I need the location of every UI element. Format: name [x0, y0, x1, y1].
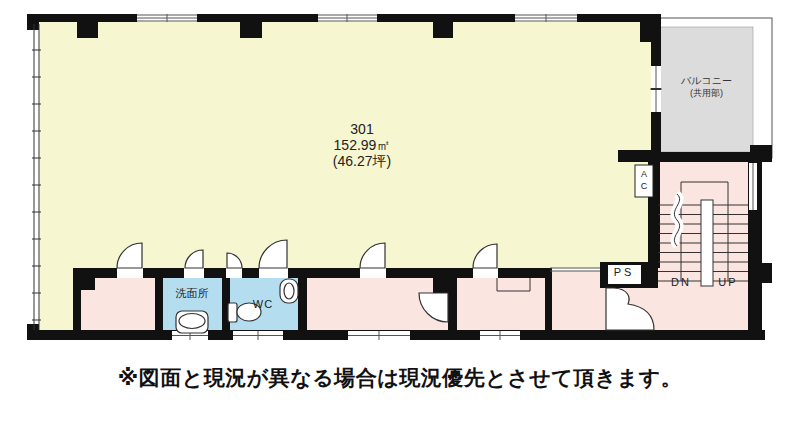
toilet-fixture	[228, 303, 237, 322]
stair-handrail	[701, 200, 713, 286]
unit-number: 301	[282, 121, 442, 137]
stairs-up-label: UP	[712, 276, 744, 289]
ac-line2: C	[635, 180, 653, 192]
balcony-name: バルコニー	[660, 75, 753, 87]
unit-area-sqm: 152.99㎡	[282, 137, 442, 153]
ac-label: A C	[635, 168, 653, 192]
wc-label: WC	[246, 298, 280, 311]
floor-plan-page: 301 152.99㎡ (46.27坪) バルコニー (共用部) A C PS …	[0, 0, 800, 432]
unit-area-tsubo: (46.27坪)	[282, 153, 442, 169]
ps-label: PS	[607, 266, 641, 279]
unit-label: 301 152.99㎡ (46.27坪)	[282, 121, 442, 169]
stairs-down-label: DN	[666, 276, 696, 289]
corridor-fill	[552, 271, 600, 332]
disclaimer-text: ※図面と現況が異なる場合は現況優先とさせて頂きます。	[0, 366, 800, 390]
ac-line1: A	[635, 168, 653, 180]
balcony-note: (共用部)	[660, 87, 753, 99]
service-room-c-fill	[457, 278, 545, 332]
washroom-label: 洗面所	[162, 287, 222, 300]
left-window-wall	[34, 24, 39, 330]
balcony-label: バルコニー (共用部)	[660, 75, 753, 99]
